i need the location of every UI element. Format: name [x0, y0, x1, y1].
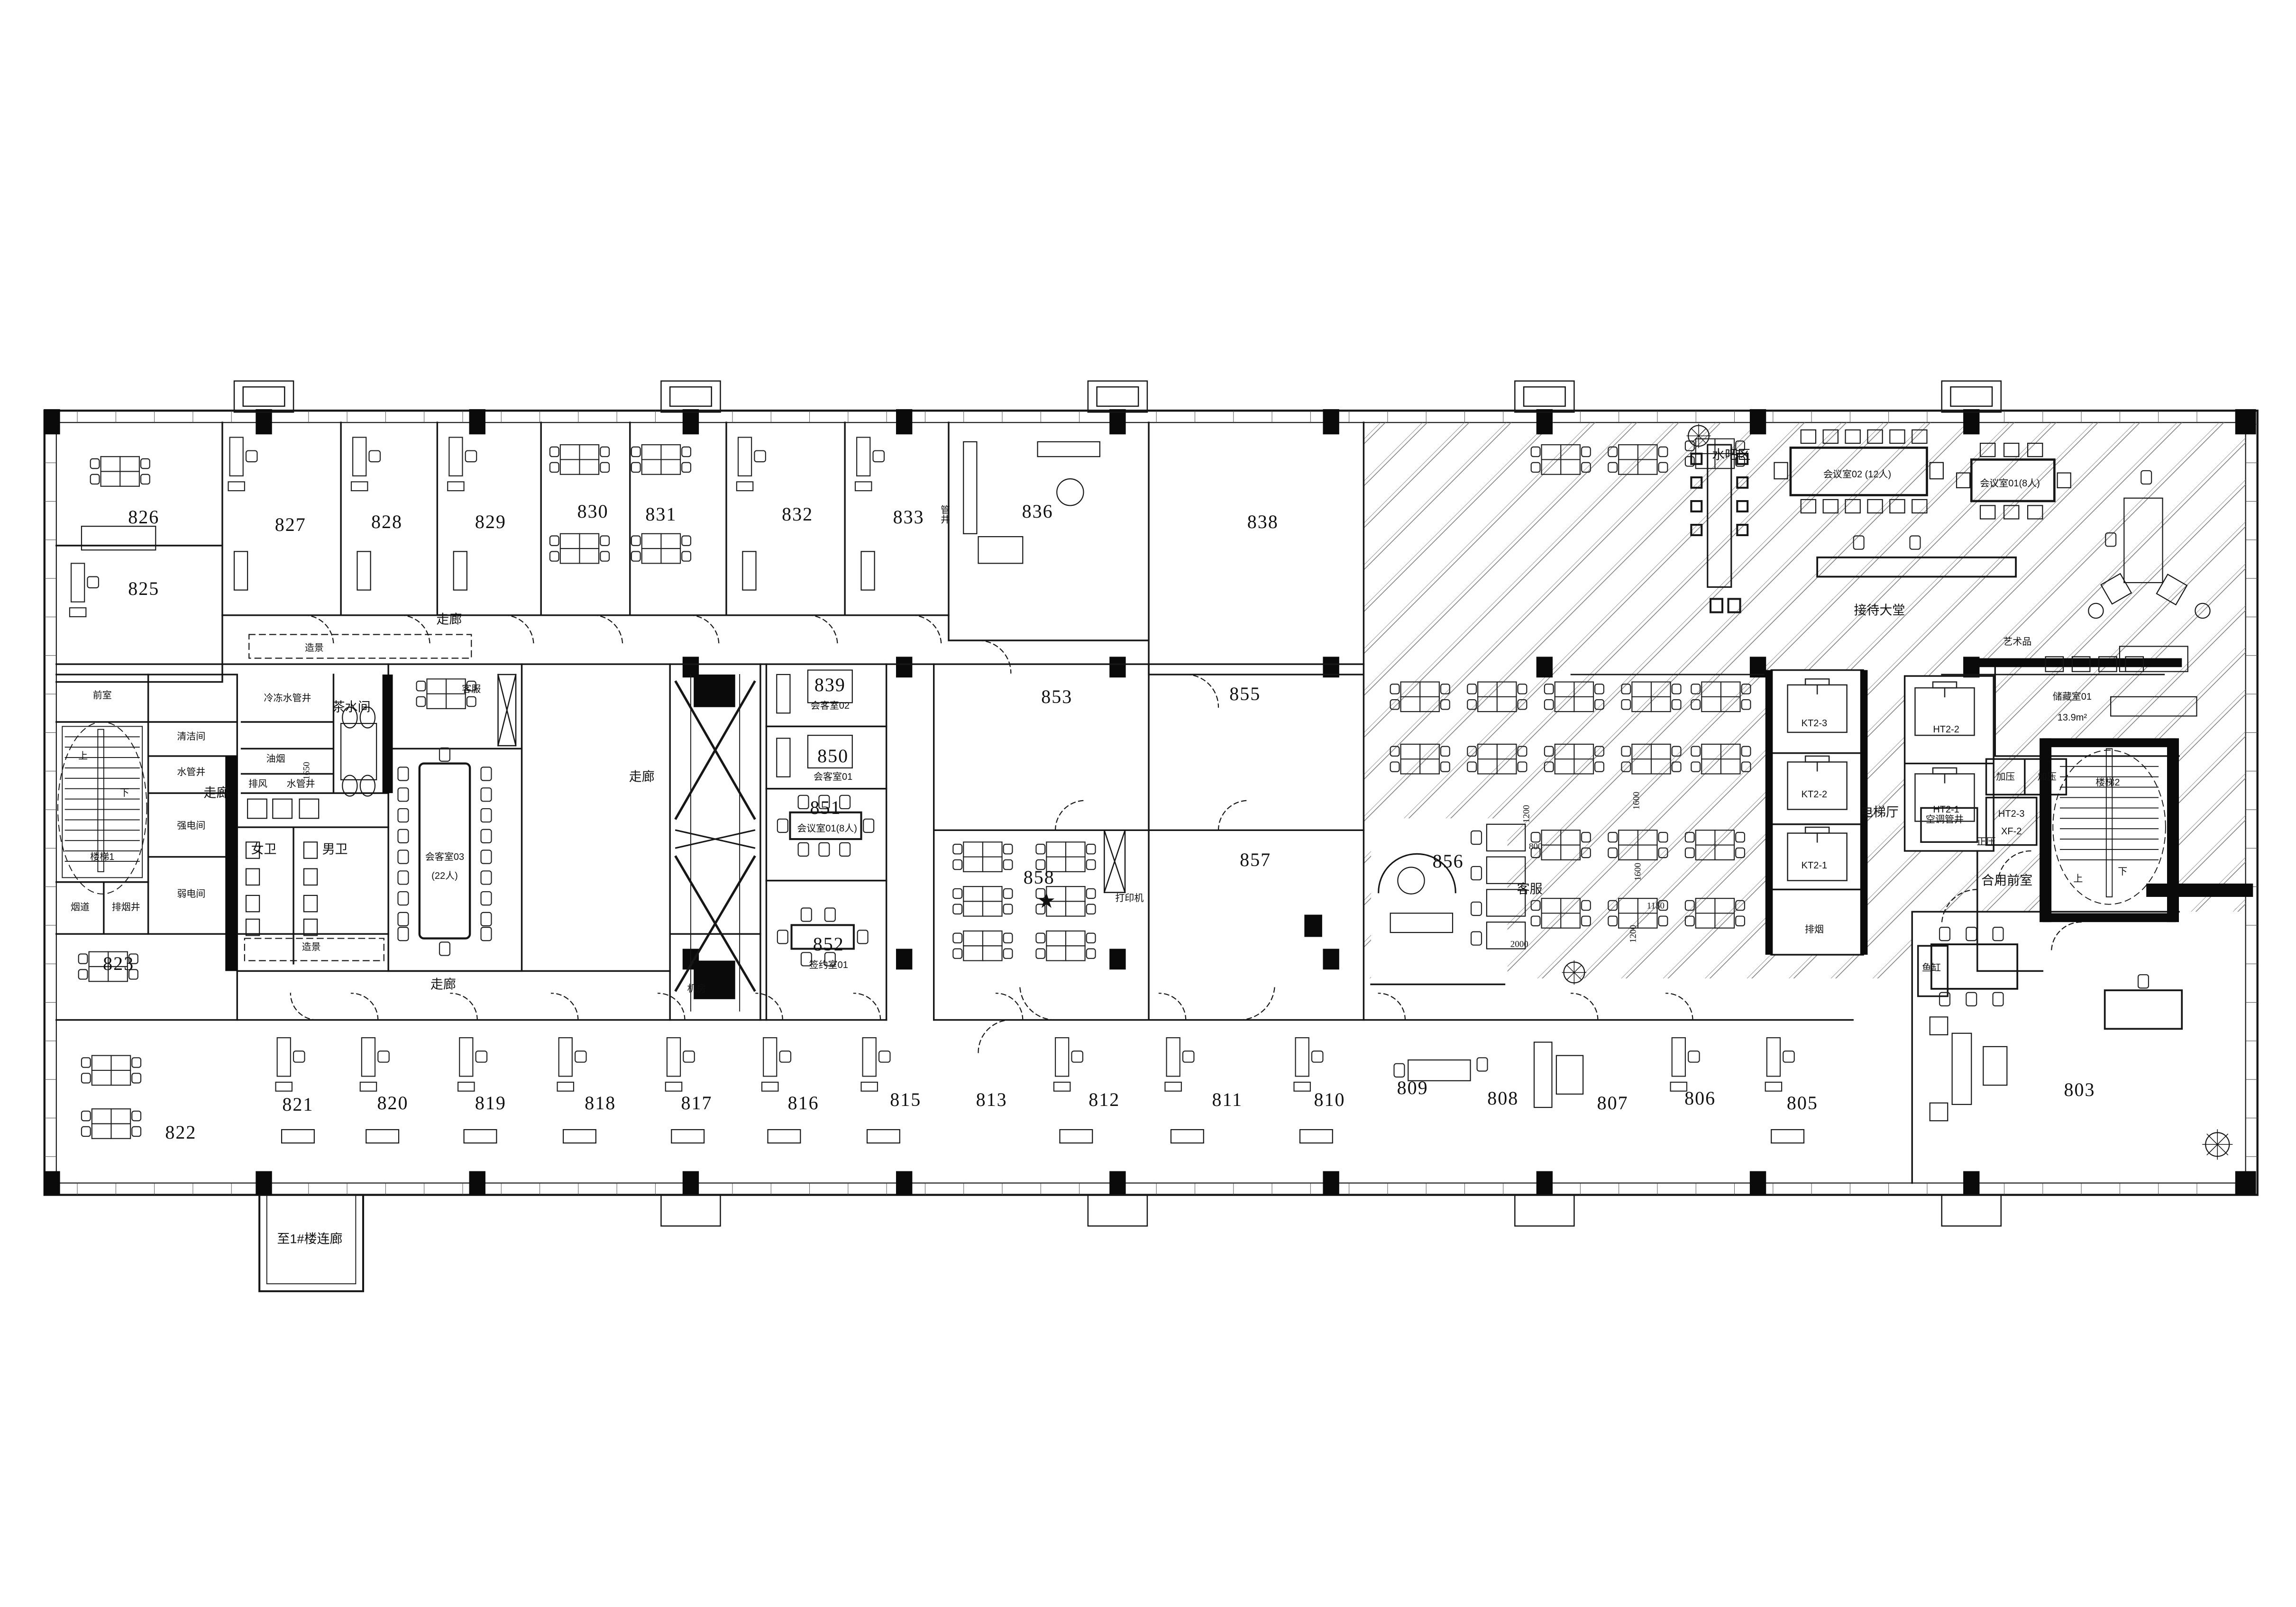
label-room-831: 831	[645, 505, 677, 524]
label-room-850: 850	[817, 747, 849, 766]
floor-plan: 8268278288298308318328338368388258238228…	[0, 0, 2296, 1607]
label-room-809: 809	[1397, 1078, 1428, 1097]
label-landscape-bottom: 造景	[302, 942, 321, 952]
label-stair1-down: 下	[120, 788, 129, 798]
label-chilled-water-shaft: 冷冻水管井	[264, 694, 311, 703]
label-water-shaft-1: 水管井	[177, 767, 205, 777]
label-press-a: 加压	[1996, 772, 2015, 782]
label-meeting-8: 会议室01(8人)	[1980, 479, 2040, 488]
label-stair-1: 楼梯1	[90, 852, 114, 862]
label-room-853: 853	[1041, 687, 1072, 706]
label-room-833: 833	[893, 508, 924, 527]
label-room-829: 829	[475, 512, 506, 531]
label-room-826: 826	[128, 508, 159, 527]
label-dim-1600-b: 1600	[1633, 863, 1642, 881]
label-fume-shaft: 油烟	[266, 754, 285, 764]
label-room-820: 820	[377, 1094, 409, 1113]
label-dim-1200-b: 1200	[1629, 925, 1638, 943]
label-layer: 8268278288298308318328338368388258238228…	[0, 0, 2296, 1607]
label-meeting-12: 会议室02 (12人)	[1823, 470, 1891, 479]
label-tea-room: 茶水间	[332, 701, 370, 713]
label-kt2-3: KT2-3	[1802, 719, 1827, 728]
label-reception-room-22: 会客室03	[425, 852, 464, 862]
label-water-bar: 水吧区	[1712, 449, 1750, 462]
label-storage-01: 储藏室01	[2053, 692, 2092, 702]
label-front-room: 前室	[93, 691, 112, 700]
label-room-855: 855	[1229, 685, 1261, 703]
label-room-803: 803	[2064, 1080, 2095, 1099]
label-room-851: 851	[810, 798, 841, 817]
label-storage-01-area: 13.9m²	[2058, 713, 2087, 722]
label-room-806: 806	[1684, 1089, 1716, 1108]
label-ht2-1: HT2-1	[1933, 805, 1959, 814]
label-dim-1200-a: 1200	[1522, 805, 1531, 823]
label-machine-room: 机房	[687, 984, 706, 994]
label-duct-shaft: 管井	[940, 505, 949, 524]
label-room-810: 810	[1314, 1090, 1345, 1109]
label-room-825: 825	[128, 579, 159, 598]
label-service-right: 客服	[1517, 883, 1543, 896]
label-kt2-2: KT2-2	[1802, 790, 1827, 799]
label-weak-electric: 弱电间	[177, 889, 205, 899]
label-room-858: 858	[1024, 868, 1055, 887]
label-room-815: 815	[890, 1090, 921, 1109]
label-room-816: 816	[788, 1094, 819, 1113]
label-dim-800: 800	[1529, 842, 1543, 851]
label-room-836: 836	[1022, 502, 1053, 521]
label-artwork: 艺术品	[2003, 637, 2031, 647]
label-room-828: 828	[371, 512, 402, 531]
label-room-817: 817	[681, 1094, 712, 1113]
label-water-shaft-2: 水管井	[287, 779, 315, 789]
label-room-857: 857	[1240, 850, 1271, 869]
label-cleaning-room: 清洁间	[177, 732, 205, 741]
label-dim-1650: 1650	[302, 762, 311, 780]
label-room851-name: 会议室01(8人)	[797, 824, 857, 833]
label-ht2-3: HT2-3	[1998, 809, 2025, 819]
label-printer: 打印机	[1115, 894, 1143, 903]
label-press-b: 加压	[2038, 772, 2057, 782]
label-kt2-1: KT2-1	[1802, 861, 1827, 870]
label-ac-duct-shaft: 空调管井	[1926, 815, 1964, 824]
label-ht2-2: HT2-2	[1933, 725, 1959, 734]
label-corridor-bottom: 走廊	[430, 978, 456, 991]
label-dim-1600-a: 1600	[1632, 792, 1641, 810]
label-room-839: 839	[814, 676, 846, 694]
label-smoke-exhaust-shaft: 排烟井	[112, 903, 140, 912]
label-stair1-up: 上	[78, 751, 88, 761]
label-wc-women: 女卫	[251, 843, 277, 856]
label-room-852: 852	[813, 935, 844, 954]
label-elevator-hall: 电梯厅	[1860, 806, 1899, 819]
label-wc-men: 男卫	[322, 843, 348, 856]
label-dim-2000: 2000	[1510, 940, 1528, 949]
label-stair2-up: 上	[2073, 874, 2083, 884]
label-smoke-vent: 排烟	[1805, 925, 1824, 934]
label-room-807: 807	[1597, 1094, 1628, 1113]
label-room-811: 811	[1212, 1090, 1243, 1109]
label-service-left: 客服	[462, 685, 481, 694]
label-corridor-left: 走廊	[203, 787, 229, 800]
label-fish-tank: 鱼缸	[1922, 963, 1941, 973]
label-stair2-down: 下	[2118, 867, 2127, 877]
label-strong-electric: 强电间	[177, 821, 205, 831]
label-positive-pressure: 正压	[1977, 837, 1996, 847]
label-flue: 烟道	[71, 903, 90, 912]
label-corridor-mid: 走廊	[629, 770, 655, 783]
label-room-805: 805	[1787, 1094, 1818, 1113]
label-dim-1150: 1150	[1647, 901, 1665, 910]
label-room-830: 830	[577, 502, 609, 521]
label-room-813: 813	[976, 1090, 1007, 1109]
label-link-bridge: 至1#楼连廊	[277, 1233, 342, 1246]
label-room-856: 856	[1433, 852, 1464, 871]
label-stair-2: 楼梯2	[2095, 778, 2120, 787]
label-room-819: 819	[475, 1094, 506, 1113]
label-room-818: 818	[585, 1094, 616, 1113]
label-room-832: 832	[782, 505, 813, 524]
label-corridor-top: 走廊	[436, 613, 462, 626]
label-landscape-top: 造景	[305, 643, 324, 653]
label-room850-name: 会客室01	[814, 772, 852, 782]
label-lobby: 接待大堂	[1854, 604, 1905, 617]
label-star-858: ★	[1037, 891, 1056, 912]
label-shared-front-room: 合用前室	[1981, 874, 2032, 887]
label-room-812: 812	[1089, 1090, 1120, 1109]
label-room839-name: 会客室02	[811, 701, 850, 711]
label-room-823: 823	[103, 954, 134, 973]
label-room-822: 822	[165, 1123, 196, 1142]
label-exhaust-air: 排风	[248, 779, 267, 789]
label-room-827: 827	[275, 515, 306, 534]
label-room-838: 838	[1247, 512, 1279, 531]
label-room-821: 821	[282, 1095, 313, 1114]
label-room-808: 808	[1487, 1089, 1518, 1108]
label-room852-name: 签约室01	[809, 960, 848, 970]
label-xf-2: XF-2	[2001, 827, 2022, 836]
label-reception-room-22-cap: (22人)	[431, 871, 458, 881]
